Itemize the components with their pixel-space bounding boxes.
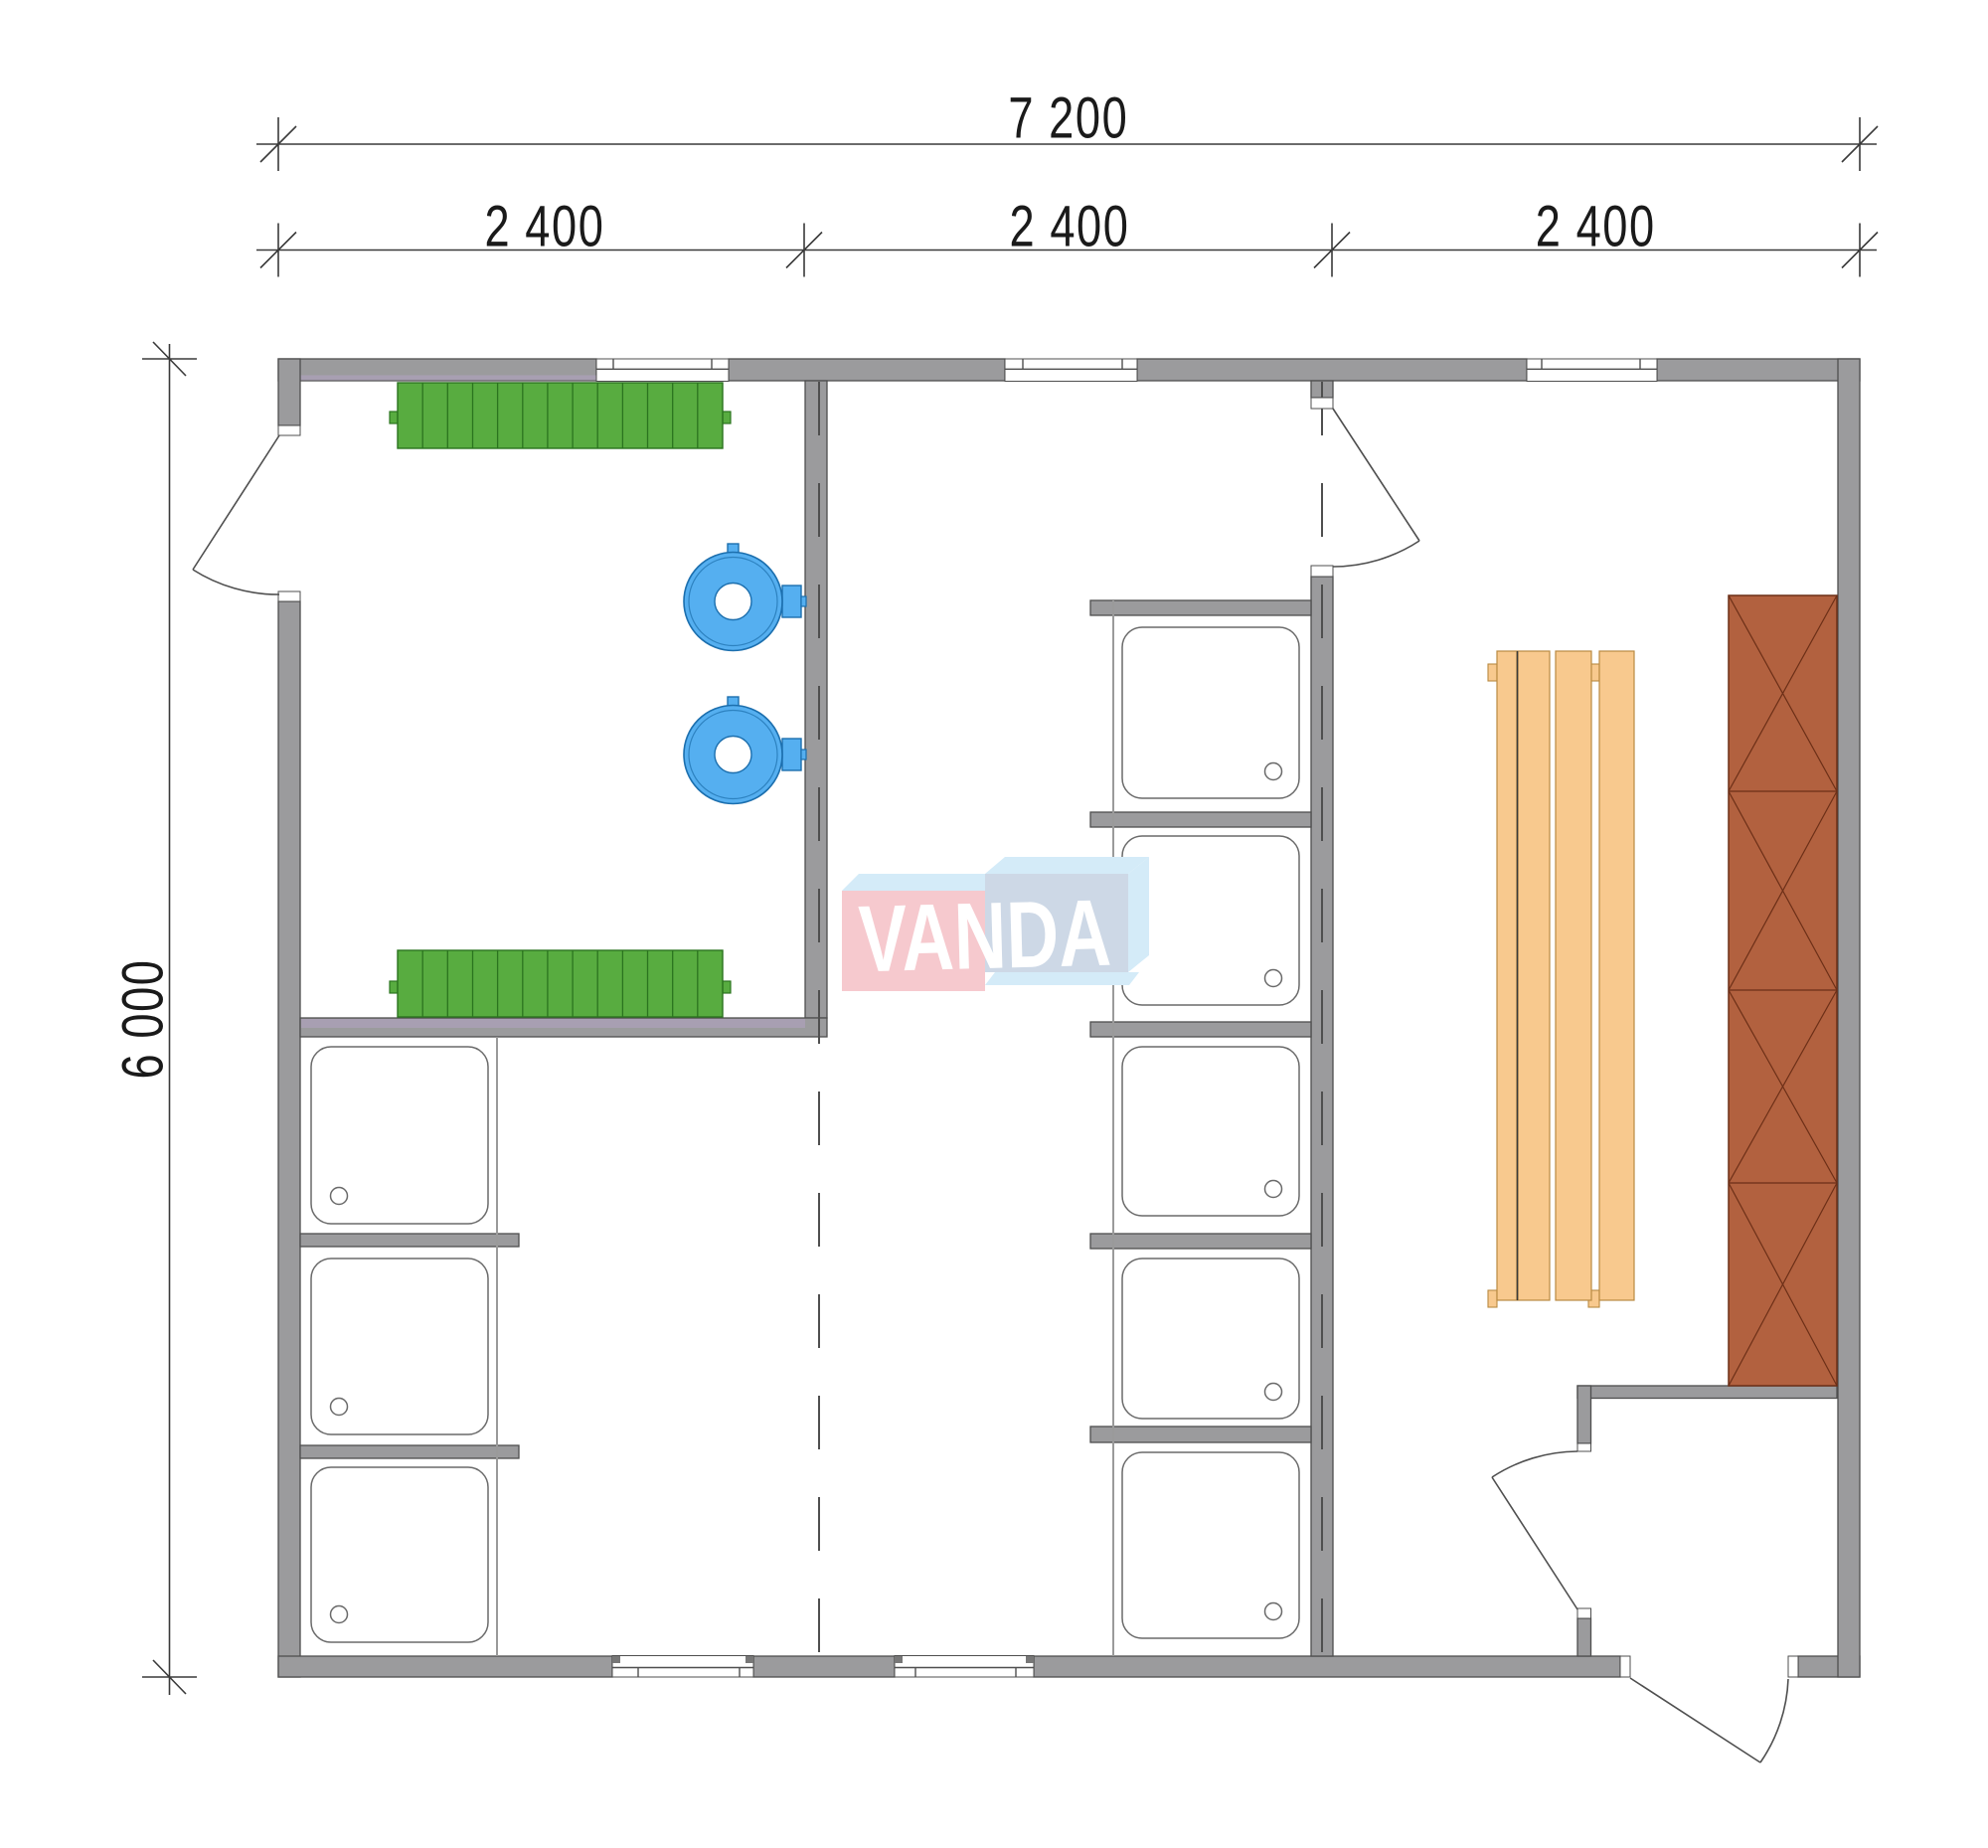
svg-text:VANDA: VANDA [857,881,1112,993]
svg-text:2 400: 2 400 [484,195,604,259]
svg-text:2 400: 2 400 [1010,195,1130,259]
svg-text:6 000: 6 000 [111,959,176,1080]
svg-text:2 400: 2 400 [1536,195,1656,259]
svg-text:7 200: 7 200 [1008,86,1128,151]
